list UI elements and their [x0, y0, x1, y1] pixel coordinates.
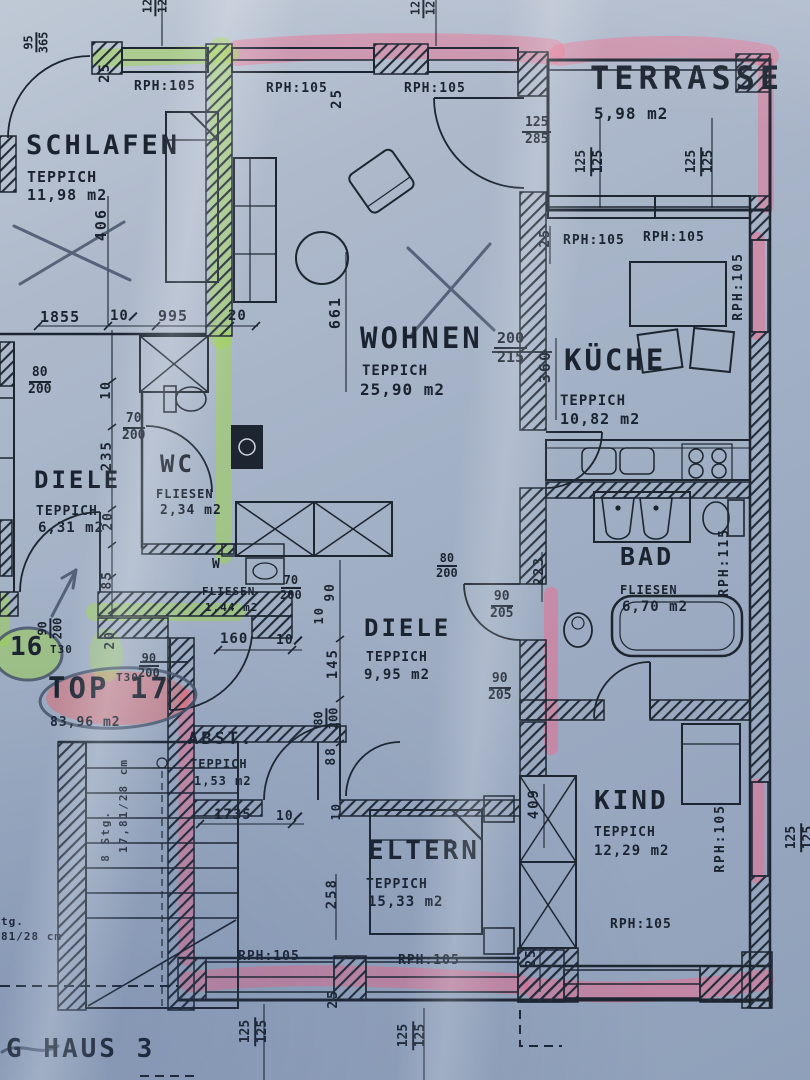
sofa [234, 158, 276, 302]
dim-value: 200 [52, 618, 65, 640]
house-label: G HAUS 3 [6, 1036, 155, 1062]
dim-value: 80 [29, 366, 51, 383]
dim-409: 409 [527, 788, 541, 819]
dim-125-285: 125285 [522, 116, 551, 147]
rph-label: RPH:105 [398, 954, 460, 967]
door-arc-neighbor [8, 56, 90, 138]
dim-125-125: 125125 [239, 1017, 270, 1046]
dim-95-365: 95365 [22, 32, 51, 54]
dim-value: 125 [141, 0, 156, 16]
bed-eltern [370, 810, 482, 934]
dim-25: 25 [98, 62, 112, 83]
room-label-diele-16: DIELE [34, 468, 121, 492]
washbasin [602, 498, 634, 539]
dim-10: 10 [276, 634, 299, 647]
rph-label: RPH:105 [610, 918, 672, 931]
stairs-note-fragment: 81/28 cm [1, 931, 62, 942]
room-area-abst: 1,53 m2 [194, 775, 252, 787]
dim-80-200: 80200 [28, 366, 51, 397]
dim-80-200: 80200 [436, 552, 458, 581]
room-floor-abst: TEPPICH [190, 758, 248, 770]
rph-label: RPH:105 [714, 804, 727, 873]
stairs-note-fragment: tg. [1, 916, 24, 927]
round-table [296, 232, 348, 284]
room-floor-diele-16: TEPPICH [36, 505, 98, 518]
dim-125-125: 125125 [785, 823, 810, 852]
room-label-diele-17: DIELE [364, 616, 451, 640]
dim-10: 10 [110, 309, 134, 323]
dim-value: 125 [802, 826, 810, 849]
dim-value: 200 [138, 667, 160, 680]
dim-value: 125 [685, 147, 702, 176]
room-floor-wohnen: TEPPICH [362, 364, 428, 378]
dim-value: 90 [489, 672, 511, 689]
dim-value: 125 [157, 0, 170, 13]
room-label-wc-16: WC [160, 452, 195, 476]
chair [690, 328, 734, 372]
room-floor-kueche: TEPPICH [560, 394, 626, 408]
dim-85: 85 [101, 570, 114, 590]
room-area-wohnen: 25,90 m2 [360, 382, 445, 398]
rph-label: RPH:105 [238, 950, 300, 963]
rph-label: RPH:105 [404, 82, 466, 95]
rph-label: RPH:105 [134, 80, 196, 93]
dim-value: 80 [437, 552, 457, 567]
stairs-note-steps: 8 Stg. [100, 810, 111, 862]
dim-value: 205 [490, 607, 513, 622]
dim-70-200: 70200 [280, 574, 302, 603]
dim-10: 10 [313, 606, 325, 624]
dim-value: 125 [425, 0, 438, 15]
room-floor-kind: TEPPICH [594, 826, 656, 839]
dim-20: 20 [228, 309, 247, 323]
room-label-wc-klein: W [212, 558, 221, 571]
stairs-note-riser: 17,81/28 cm [118, 758, 129, 853]
room-area-diele-17: 9,95 m2 [364, 668, 430, 682]
dim-value: 200 [328, 708, 341, 730]
dim-10: 10 [276, 810, 299, 823]
room-area-wc-klein: 1,44 m2 [205, 602, 258, 613]
dim-value: 125 [702, 150, 717, 173]
dim-value: 125 [414, 1024, 429, 1047]
dim-value: 125 [785, 823, 802, 852]
dim-value: 125 [522, 116, 551, 133]
room-floor-diele-17: TEPPICH [366, 651, 428, 664]
unit-area-top17: 83,96 m2 [50, 716, 121, 729]
dim-value: 80 [312, 708, 327, 728]
dim-200-215: 200215 [494, 330, 527, 366]
dim-value: 125 [592, 150, 607, 173]
room-label-eltern: ELTERN [368, 838, 480, 864]
dim-20: 20 [104, 630, 117, 650]
sink [620, 448, 654, 474]
dim-125-125: 125125 [409, 0, 438, 18]
dim-90-200: 90200 [36, 618, 65, 640]
dim-125-125: 125125 [141, 0, 170, 16]
dim-661: 661 [328, 296, 343, 329]
dim-223: 223 [533, 556, 546, 585]
dim-value: 70 [281, 574, 301, 589]
room-label-kind: KIND [594, 788, 669, 814]
dim-value: 205 [488, 689, 511, 704]
room-label-bad: BAD [620, 544, 674, 569]
room-area-schlafen: 11,98 m2 [27, 188, 107, 203]
dim-value: 90 [491, 590, 513, 607]
dim-value: 200 [494, 330, 527, 349]
rph-label: RPH:105 [643, 231, 705, 244]
dim-125-125: 125125 [397, 1021, 428, 1050]
room-label-terrasse: TERRASSE [590, 62, 784, 94]
room-floor-eltern: TEPPICH [366, 878, 428, 891]
dim-88: 88 [325, 746, 338, 766]
dim-360: 360 [538, 350, 553, 383]
dim-value: 200 [280, 589, 302, 602]
dim-145: 145 [326, 648, 340, 679]
dim-value: 90 [36, 618, 51, 638]
dim-995: 995 [158, 309, 188, 324]
room-floor-wc-klein: FLIESEN [202, 586, 255, 597]
dim-125-125: 125125 [575, 147, 606, 176]
dim-20: 20 [102, 511, 115, 531]
dim-1855: 1855 [40, 310, 80, 325]
room-label-kueche: KÜCHE [564, 346, 666, 375]
door-arc-abst [346, 742, 400, 796]
dim-value: 90 [139, 652, 159, 667]
dim-80-200: 80200 [312, 708, 341, 730]
floor-plan-photo: SCHLAFEN TEPPICH 11,98 m2 TERRASSE 5,98 … [0, 0, 810, 1080]
dim-value: 95 [22, 32, 37, 52]
shaft [232, 426, 262, 468]
room-area-diele-16: 6,31 m2 [38, 521, 104, 535]
room-area-kueche: 10,82 m2 [560, 412, 640, 427]
dim-value: 125 [409, 0, 424, 18]
door-arc-terrace [434, 98, 524, 188]
dim-value: 70 [123, 412, 145, 429]
room-floor-wc-16: FLIESEN [156, 488, 214, 500]
dim-value: 125 [397, 1021, 414, 1050]
dim-25: 25 [525, 948, 538, 968]
wardrobe-kind [682, 724, 740, 804]
room-area-terrasse: 5,98 m2 [594, 106, 668, 122]
kitchen-table [630, 262, 726, 326]
dim-70-200: 70200 [122, 412, 145, 443]
dim-10: 10 [330, 802, 342, 820]
room-label-wohnen: WOHNEN [360, 324, 483, 353]
dim-258: 258 [325, 878, 339, 909]
bidet [564, 613, 592, 647]
dim-value: 285 [525, 133, 548, 148]
rph-label: RPH:105 [563, 234, 625, 247]
dim-1735: 1735 [214, 808, 252, 822]
dim-235: 235 [100, 440, 114, 471]
toilet-tank-wc16 [164, 386, 176, 412]
room-label-schlafen: SCHLAFEN [26, 132, 180, 159]
dim-value: 125 [575, 147, 592, 176]
room-area-eltern: 15,33 m2 [368, 895, 443, 909]
dim-value: 125 [256, 1020, 271, 1043]
room-area-wc-16: 2,34 m2 [160, 504, 222, 517]
nightstand [484, 928, 514, 954]
room-area-bad: 6,70 m2 [622, 600, 688, 614]
rph-label: RPH:105 [732, 252, 745, 321]
dim-90-205: 90205 [488, 672, 511, 703]
dim-406: 406 [94, 208, 109, 241]
rph-label: RPH:105 [266, 82, 328, 95]
dim-125-125: 125125 [685, 147, 716, 176]
dim-90-200: 90200 [138, 652, 160, 681]
door-type-t30: T30 [50, 644, 73, 655]
room-label-abst: ABST. [188, 731, 254, 748]
dim-value: 365 [38, 32, 51, 54]
toilet-wc16 [176, 387, 206, 411]
dim-value: 200 [122, 429, 145, 444]
dim-25: 25 [330, 88, 344, 109]
dim-90-205: 90205 [490, 590, 513, 621]
dim-value: 200 [436, 567, 458, 580]
armchair [347, 147, 416, 215]
door-type-t30: T30 [116, 672, 139, 683]
dim-value: 215 [497, 349, 524, 366]
dim-160: 160 [220, 632, 248, 646]
room-area-kind: 12,29 m2 [594, 844, 669, 858]
dim-25: 25 [327, 989, 340, 1009]
basin-wc17 [246, 558, 284, 584]
room-floor-schlafen: TEPPICH [27, 170, 97, 185]
rph-label-115: RPH:115 [718, 528, 731, 597]
dim-90: 90 [324, 582, 337, 602]
dim-10: 10 [100, 380, 113, 400]
dim-value: 200 [28, 383, 51, 398]
room-floor-bad: FLIESEN [620, 584, 678, 596]
dim-value: 125 [239, 1017, 256, 1046]
washbasin [640, 498, 672, 539]
dim-25: 25 [539, 228, 552, 248]
